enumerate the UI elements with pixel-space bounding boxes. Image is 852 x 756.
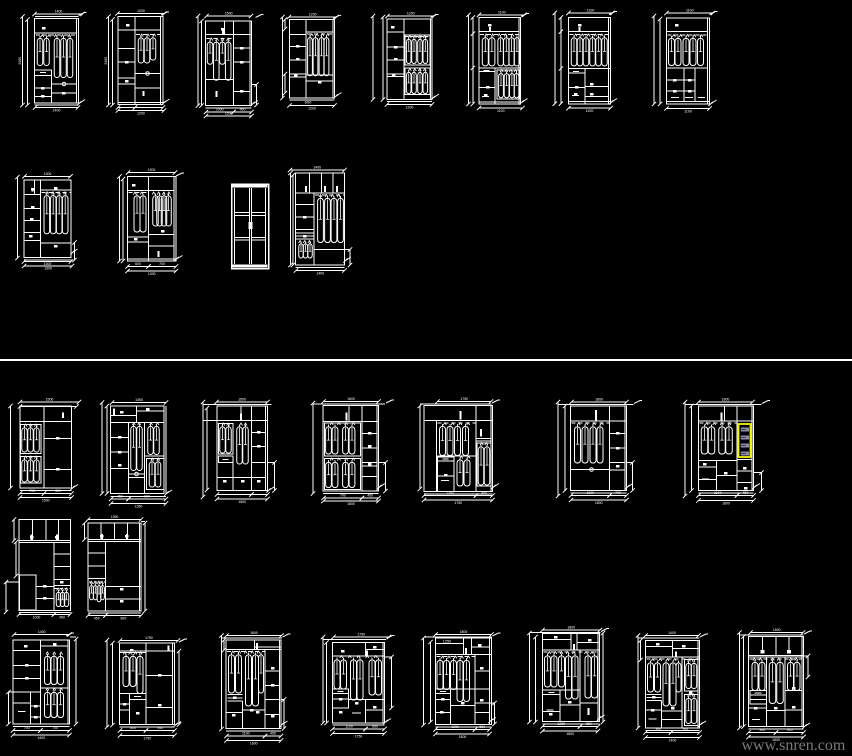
svg-text:1500: 1500 <box>225 112 233 116</box>
svg-text:700: 700 <box>340 494 346 498</box>
svg-text:1000: 1000 <box>33 616 41 620</box>
svg-text:1200: 1200 <box>407 12 415 16</box>
svg-text:1300: 1300 <box>148 272 156 276</box>
svg-text:1100: 1100 <box>242 732 250 736</box>
svg-text:1400: 1400 <box>669 739 677 743</box>
svg-text:1400: 1400 <box>37 736 45 740</box>
svg-text:1400: 1400 <box>313 166 321 170</box>
svg-text:2400: 2400 <box>18 57 22 65</box>
svg-text:1750: 1750 <box>460 397 468 401</box>
svg-text:1200: 1200 <box>137 9 145 13</box>
svg-text:1100: 1100 <box>498 10 506 14</box>
svg-text:1400: 1400 <box>55 10 63 14</box>
svg-text:450: 450 <box>59 616 65 620</box>
svg-text:1100: 1100 <box>587 8 595 12</box>
svg-text:700: 700 <box>159 262 165 266</box>
svg-text:1600: 1600 <box>250 742 258 746</box>
svg-text:1800: 1800 <box>459 735 467 739</box>
svg-text:1800: 1800 <box>460 630 468 634</box>
svg-text:1100: 1100 <box>684 110 692 114</box>
svg-text:1800: 1800 <box>566 732 574 736</box>
svg-text:1100: 1100 <box>686 9 694 13</box>
svg-text:1350: 1350 <box>135 398 143 402</box>
svg-text:1350: 1350 <box>111 515 119 519</box>
svg-text:900: 900 <box>120 617 126 621</box>
svg-text:1600: 1600 <box>250 631 258 635</box>
svg-text:1750: 1750 <box>357 633 365 637</box>
svg-text:600: 600 <box>135 262 141 266</box>
svg-text:1300: 1300 <box>148 168 156 172</box>
svg-text:1500: 1500 <box>238 500 246 504</box>
svg-text:1300: 1300 <box>44 172 52 176</box>
svg-text:1100: 1100 <box>497 109 505 113</box>
svg-text:1350: 1350 <box>135 505 143 509</box>
svg-text:1750: 1750 <box>355 735 363 739</box>
svg-text:1200: 1200 <box>137 112 145 116</box>
svg-text:450: 450 <box>94 617 100 621</box>
svg-text:www.snren.com: www.snren.com <box>742 737 846 754</box>
svg-text:1500: 1500 <box>238 398 246 402</box>
svg-text:1300: 1300 <box>44 267 52 271</box>
svg-text:1800: 1800 <box>567 626 575 630</box>
svg-text:1500: 1500 <box>225 12 233 16</box>
svg-text:1800: 1800 <box>722 502 730 506</box>
svg-text:1750: 1750 <box>145 636 153 640</box>
svg-text:1600: 1600 <box>347 397 355 401</box>
svg-text:1800: 1800 <box>595 501 603 505</box>
svg-text:1100: 1100 <box>586 109 594 113</box>
svg-text:1400: 1400 <box>53 109 61 113</box>
svg-text:1750: 1750 <box>143 737 151 741</box>
svg-text:1200: 1200 <box>309 13 317 17</box>
svg-text:1400: 1400 <box>38 630 46 634</box>
svg-text:1300: 1300 <box>44 262 52 266</box>
svg-text:2400: 2400 <box>104 57 108 65</box>
svg-text:1400: 1400 <box>668 631 676 635</box>
svg-text:1500: 1500 <box>42 499 50 503</box>
svg-text:450: 450 <box>367 494 373 498</box>
svg-text:1500: 1500 <box>46 398 54 402</box>
svg-text:1800: 1800 <box>773 628 781 632</box>
svg-text:1400: 1400 <box>316 272 324 276</box>
svg-text:1750: 1750 <box>454 501 462 505</box>
svg-text:1200: 1200 <box>308 107 316 111</box>
svg-text:1600: 1600 <box>347 502 355 506</box>
svg-text:450: 450 <box>270 732 276 736</box>
svg-text:1200: 1200 <box>406 106 414 110</box>
svg-text:1800: 1800 <box>595 398 603 402</box>
svg-text:1250: 1250 <box>443 640 451 644</box>
svg-text:1800: 1800 <box>722 398 730 402</box>
